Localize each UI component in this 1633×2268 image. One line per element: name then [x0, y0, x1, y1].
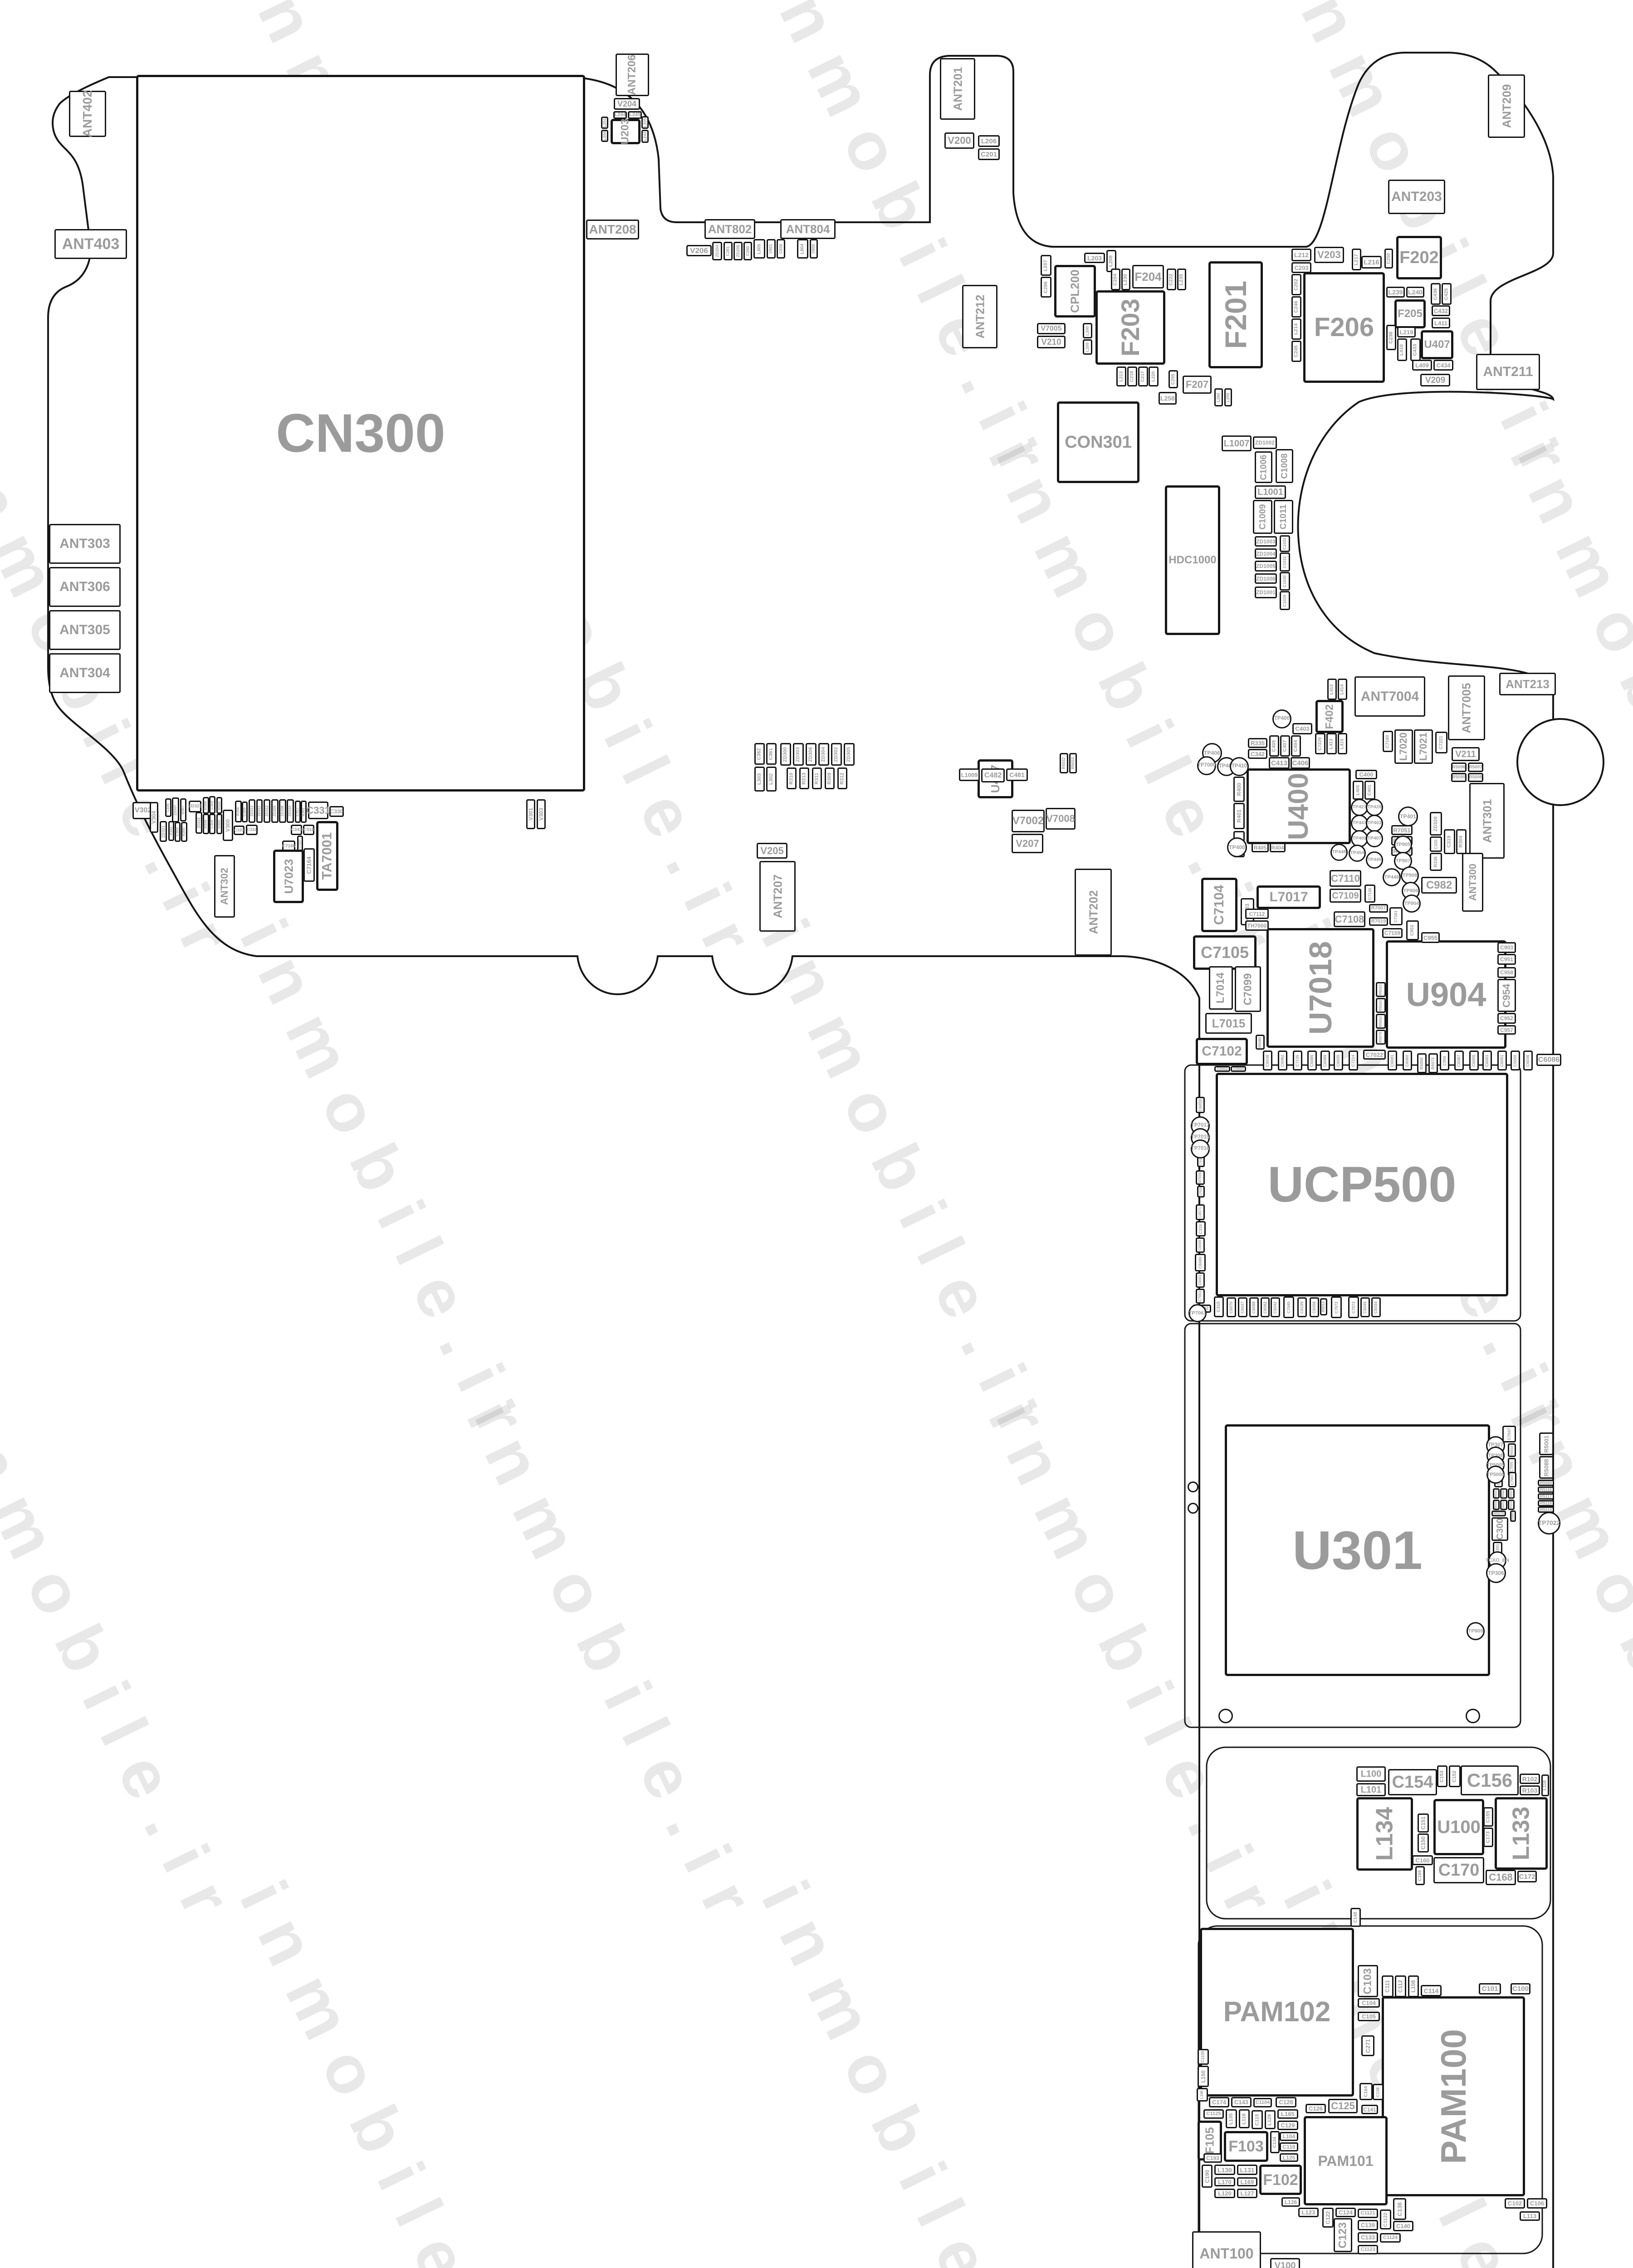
component-L400: L400: [1353, 781, 1364, 800]
component-C1121: C1121: [1358, 2209, 1378, 2218]
component-C125: C125: [1328, 2099, 1358, 2113]
component-L207: L207: [1041, 255, 1051, 276]
component-F206: F206: [1303, 272, 1385, 383]
component-C152: C152: [1449, 1765, 1461, 1787]
component-F203: F203: [1095, 290, 1165, 365]
component-V800: V800: [810, 239, 818, 259]
component-L126: L126: [1281, 2197, 1300, 2207]
component-C150: C150: [1418, 1833, 1429, 1853]
component-R5116: R5116: [1538, 1486, 1554, 1493]
component-ANT301: ANT301: [1469, 783, 1505, 859]
component-C193: C193: [1203, 2153, 1222, 2163]
component-F202: F202: [1396, 236, 1442, 279]
component-R5057: R5057: [1508, 1488, 1515, 1499]
component-V7005: V7005: [1037, 323, 1066, 334]
component-ANT209: ANT209: [1488, 74, 1525, 138]
component-C1031: C1031: [1280, 552, 1290, 572]
component-C7045: C7045: [1283, 1296, 1294, 1318]
testpoint-TP403: TP403: [1366, 815, 1383, 832]
component-U203: U203: [611, 119, 640, 144]
component-R312: R312: [837, 767, 847, 789]
component-CON301: CON301: [1057, 401, 1139, 483]
component-ZD1005: ZD1005: [1255, 561, 1277, 572]
component-L230: L230: [1121, 269, 1130, 290]
component-L805: L805: [753, 239, 765, 259]
component-R5001: R5001: [1539, 1432, 1554, 1455]
component-C317: C317: [295, 801, 301, 823]
component-C7105: C7105: [1193, 935, 1257, 970]
component-V200: V200: [944, 132, 974, 149]
component-C7072: C7072: [1331, 1296, 1342, 1318]
component-C246: C246: [1291, 296, 1301, 318]
component-C6088: C6088: [1249, 1297, 1259, 1317]
component-V204: V204: [614, 98, 640, 110]
component-ZD322: ZD322: [196, 812, 202, 834]
component-C106: C106: [1527, 2198, 1547, 2209]
component-C250: C250: [1384, 249, 1393, 269]
component-ZD205: ZD205: [733, 242, 743, 260]
component-ANT7004: ANT7004: [1354, 676, 1425, 717]
component-L198: L198: [1197, 2088, 1208, 2102]
component-C6038: C6038: [1263, 1051, 1272, 1070]
component-ZD302: ZD302: [831, 743, 842, 766]
component-R5010: R5010: [1508, 1443, 1516, 1457]
component-V206: V206: [686, 245, 712, 256]
component-R306: R306: [235, 801, 242, 822]
component-C6069: C6069: [1196, 1237, 1205, 1253]
component-C204: C204: [1111, 269, 1120, 290]
component-C295: C295: [1169, 370, 1178, 388]
component-L411: L411: [1432, 318, 1450, 328]
component-R304: R304: [1456, 829, 1467, 854]
component-C222: C222: [1167, 269, 1176, 290]
component-C143: C143: [1231, 2097, 1252, 2107]
component-ZD320: ZD320: [1430, 812, 1442, 836]
component-C951: C951: [1497, 954, 1516, 965]
component-R311: R311: [812, 767, 822, 789]
component-C140: C140: [1393, 2221, 1413, 2231]
component-L217: L217: [1352, 249, 1361, 270]
component-C838: C838: [777, 239, 785, 259]
component-L240: L240: [1406, 287, 1424, 298]
component-V100: V100: [1270, 2258, 1300, 2268]
testpoint-TP809: TP809: [1467, 1622, 1485, 1640]
component-C407: C407: [1280, 735, 1290, 757]
component-R5088: R5088: [1539, 1456, 1554, 1479]
testpoint-TP904: TP904: [1403, 894, 1421, 913]
testpoint-TP428: TP428: [1366, 799, 1383, 816]
testpoint-TP410: TP410: [1230, 757, 1249, 776]
component-V304: V304: [150, 802, 158, 833]
component-ANT208: ANT208: [586, 220, 639, 240]
component-L120: L120: [1214, 2189, 1235, 2198]
component-R5024: R5024: [1376, 998, 1386, 1013]
component-L116: L116: [1239, 2109, 1250, 2128]
component-C6051: C6051: [1497, 1051, 1507, 1070]
component-L7020: L7020: [1394, 729, 1413, 764]
component-layer: CN300ANT402ANT403ANT303ANT306ANT305ANT30…: [0, 0, 1633, 2268]
component-L7014: L7014: [1209, 966, 1233, 1010]
testpoint-TP400: TP400: [1227, 837, 1247, 857]
component-C6086: C6086: [1536, 1054, 1561, 1066]
component-C105: C105: [1358, 2012, 1380, 2021]
component-F102: F102: [1259, 2165, 1302, 2195]
component-C124: C124: [1335, 2208, 1356, 2217]
component-V207: V207: [1012, 834, 1043, 853]
component-L127: L127: [1237, 2189, 1257, 2198]
component-C173: C173: [1483, 1828, 1493, 1847]
testpoint-TP400: TP400: [1272, 709, 1291, 728]
component-C138: C138: [1373, 2084, 1384, 2100]
component-C434: C434: [1433, 360, 1453, 371]
component-U301: U301: [1225, 1424, 1490, 1676]
component-R7019: R7019: [1369, 917, 1388, 926]
component-C6085: C6085: [1307, 1051, 1317, 1070]
testpoint-TP7022: TP7022: [1538, 1512, 1560, 1535]
component-L214: L214: [1291, 318, 1301, 340]
component-C7108: C7108: [1334, 911, 1365, 927]
component-R303: R303: [216, 814, 222, 834]
component-C7007: C7007: [1508, 1472, 1516, 1487]
pcb-layout-diagram: PCB component placement diagram inmobile…: [0, 0, 1633, 2268]
component-C6087: C6087: [1454, 1051, 1464, 1070]
component-R404: R404: [1270, 843, 1286, 852]
component-R332: R332: [216, 797, 222, 814]
component-C6109: C6109: [1297, 1297, 1307, 1317]
component-C6055: C6055: [1469, 1051, 1479, 1070]
component-ANT203: ANT203: [1388, 180, 1445, 214]
component-C7130: C7130: [1364, 885, 1375, 903]
component-C7214: C7214: [1349, 1051, 1358, 1070]
component-C128: C128: [1276, 2097, 1296, 2107]
component-R5117: R5117: [1538, 1493, 1554, 1500]
component-F402: F402: [1315, 700, 1344, 733]
component-C6045: C6045: [1360, 1297, 1370, 1317]
component-F207: F207: [1183, 376, 1212, 394]
component-L113: L113: [1520, 2211, 1540, 2221]
component-C151: C151: [1418, 1813, 1429, 1833]
testpoint-TP5006: TP5006: [1486, 1466, 1505, 1484]
component-C133: C133: [1358, 2232, 1378, 2243]
component-L131: L131: [1237, 2165, 1257, 2175]
component-C401: C401: [1364, 781, 1375, 800]
component-C406: C406: [1291, 757, 1310, 769]
component-C318: C318: [303, 825, 314, 835]
component-V203: V203: [1314, 247, 1344, 263]
component-C139: C139: [1358, 2220, 1378, 2230]
component-C320: C320: [1430, 836, 1442, 852]
component-C336: C336: [165, 798, 171, 817]
component-C174: C174: [1209, 2097, 1229, 2107]
component-C7229: C7229: [1315, 733, 1325, 754]
component-C1008: C1008: [1276, 449, 1293, 483]
component-C217: C217: [1138, 367, 1148, 386]
component-L1009: L1009: [959, 768, 980, 781]
component-V303: V303: [537, 799, 546, 829]
component-R348: R348: [203, 797, 209, 814]
component-C190: C190: [1202, 2165, 1213, 2188]
testpoint-TP306: TP306: [1486, 1563, 1506, 1583]
component-L205: L205: [641, 116, 649, 129]
component-C1032: C1032: [1280, 535, 1290, 552]
component-R5079: R5079: [1376, 1030, 1386, 1045]
component-C6035: C6035: [1334, 1051, 1343, 1070]
component-C316: C316: [1196, 1221, 1206, 1237]
component-ZD304: ZD304: [818, 743, 829, 766]
component-L220: L220: [1149, 367, 1159, 386]
component-C982: C982: [1421, 877, 1457, 894]
component-L415: L415: [1338, 733, 1347, 754]
component-C286: C286: [1041, 277, 1051, 298]
component-C6060: C6060: [1403, 1051, 1412, 1070]
component-L170: L170: [1214, 2177, 1235, 2186]
component-L258: L258: [1159, 392, 1177, 405]
component-C7025: C7025: [1197, 1186, 1205, 1198]
component-C114: C114: [1421, 1985, 1442, 1996]
component-L409: L409: [1412, 360, 1432, 371]
component-L302: L302: [766, 767, 777, 792]
component-C7110: C7110: [1330, 870, 1361, 887]
component-F103: F103: [1224, 2131, 1268, 2162]
component-ANT211: ANT211: [1476, 354, 1540, 390]
component-L134: L134: [1356, 1797, 1413, 1871]
component-L235: L235: [1177, 269, 1186, 290]
component-V7008: V7008: [1046, 808, 1076, 830]
component-V301: V301: [526, 799, 535, 829]
component-L125: L125: [1280, 2153, 1298, 2162]
component-C1124: C1124: [1380, 2233, 1401, 2243]
component-C7160: C7160: [1383, 731, 1393, 752]
component-C903: C903: [1497, 942, 1516, 953]
component-C362: C362: [754, 743, 765, 765]
component-L101: L101: [1356, 1783, 1386, 1796]
component-L213: L213: [1116, 367, 1126, 386]
mount-hole: [1218, 1709, 1233, 1723]
component-R5060: R5060: [1500, 1488, 1507, 1499]
component-R5073: R5073: [1428, 1053, 1438, 1073]
component-L150: L150: [1198, 2066, 1209, 2087]
component-C319: C319: [1444, 829, 1455, 854]
component-L100: L100: [1356, 1766, 1386, 1782]
component-U7018: U7018: [1266, 928, 1374, 1048]
component-C169: C169: [1415, 1866, 1425, 1885]
component-R344: R344: [203, 814, 209, 834]
component-R5072: R5072: [1508, 1500, 1515, 1510]
component-L169: L169: [1237, 2177, 1257, 2186]
component-V205: V205: [757, 843, 787, 859]
component-U400: U400: [1247, 768, 1351, 844]
component-U100: U100: [1433, 1799, 1484, 1855]
component-ANT7005: ANT7005: [1448, 675, 1485, 740]
component-ZD310: ZD310: [287, 799, 294, 823]
component-C170: C170: [1433, 1857, 1484, 1883]
component-L130: L130: [1214, 2165, 1235, 2175]
component-C331: C331: [308, 802, 328, 819]
component-C403: C403: [1292, 723, 1312, 734]
component-C432: C432: [1432, 305, 1450, 316]
component-C6037: C6037: [1238, 1297, 1247, 1317]
component-C957: C957: [1497, 1025, 1516, 1035]
component-ANT303: ANT303: [49, 524, 121, 564]
component-L206: L206: [978, 135, 1000, 147]
component-C281: C281: [724, 242, 733, 260]
component-L129: L129: [1265, 2110, 1276, 2129]
component-C6058: C6058: [1310, 1297, 1319, 1317]
component-C6070: C6070: [1227, 1297, 1236, 1317]
component-C141: C141: [1361, 2105, 1378, 2114]
component-C1123: C1123: [1358, 2245, 1378, 2254]
component-F201: F201: [1208, 261, 1263, 368]
component-C354: C354: [209, 814, 215, 834]
component-R307: R307: [180, 798, 186, 821]
component-ANT305: ANT305: [49, 610, 121, 650]
component-L203: L203: [1084, 253, 1105, 263]
component-C1105: C1105: [1198, 2049, 1209, 2065]
component-L303: L303: [754, 767, 765, 792]
component-C126: C126: [1305, 2104, 1326, 2113]
testpoint-TP454: TP454: [1349, 845, 1366, 862]
component-C7063: C7063: [1196, 1289, 1205, 1304]
component-ANT100: ANT100: [1192, 2231, 1261, 2268]
component-ANT212: ANT212: [962, 285, 997, 348]
component-C7022: C7022: [1363, 1050, 1386, 1060]
component-L804: L804: [797, 239, 808, 259]
component-L200: L200: [1083, 323, 1092, 338]
component-C271: C271: [1361, 2035, 1374, 2056]
component-ZD305: ZD305: [844, 743, 855, 766]
component-L165: L165: [1277, 2109, 1298, 2119]
component-ANT213: ANT213: [1499, 673, 1556, 695]
component-C954: C954: [1497, 979, 1516, 1012]
component-C7159: C7159: [1382, 928, 1403, 938]
component-TA7001: TA7001: [316, 821, 338, 891]
component-F205: F205: [1394, 299, 1426, 328]
component-C129: C129: [1277, 2121, 1298, 2130]
component-ANT206: ANT206: [616, 54, 649, 96]
component-C111: C111: [1382, 1975, 1393, 1997]
component-C6081: C6081: [1388, 1051, 1397, 1070]
component-ZD1002: ZD1002: [1253, 436, 1277, 449]
component-ZD313: ZD313: [249, 799, 255, 823]
component-V300: V300: [223, 810, 233, 841]
testpoint-TP446: TP446: [1383, 868, 1401, 886]
component-ZD1006: ZD1006: [1255, 573, 1277, 584]
component-C203: C203: [1291, 262, 1311, 273]
component-C6071: C6071: [1196, 1204, 1205, 1220]
component-C6082: C6082: [1261, 1297, 1270, 1317]
component-R5095: R5095: [1451, 773, 1467, 782]
component-R400: R400: [1233, 777, 1245, 802]
component-ANT207: ANT207: [759, 861, 796, 932]
component-C7073: C7073: [1348, 1296, 1359, 1318]
component-C134: C134: [1270, 2131, 1280, 2153]
component-C245: C245: [1291, 341, 1301, 362]
component-U7023: U7023: [273, 850, 304, 903]
component-C7161: C7161: [1389, 907, 1403, 925]
component-C5003: C5003: [1214, 1066, 1230, 1072]
component-C6080: C6080: [1195, 1254, 1206, 1271]
component-L104: L104: [1280, 2132, 1298, 2141]
component-ANT202: ANT202: [1075, 869, 1112, 956]
component-R5023: R5023: [1376, 982, 1386, 997]
component-C202: C202: [1291, 274, 1301, 295]
component-ANT802: ANT802: [704, 219, 755, 239]
component-R5096: R5096: [1451, 763, 1467, 772]
component-ANT403: ANT403: [54, 229, 127, 259]
component-ZD321: ZD321: [160, 821, 167, 842]
mount-hole: [1466, 1709, 1480, 1723]
component-R102: R102: [1520, 1774, 1540, 1784]
component-C6042: C6042: [1271, 1297, 1280, 1317]
component-R5032: R5032: [1060, 753, 1068, 773]
component-C359: C359: [209, 796, 215, 814]
component-L7021: L7021: [1414, 729, 1433, 764]
component-R300: R300: [181, 822, 187, 842]
mount-hole: [1188, 1481, 1198, 1492]
component-L259: L259: [1224, 388, 1232, 406]
component-R5071: R5071: [1500, 1500, 1507, 1510]
component-R5014: R5014: [1320, 1298, 1327, 1315]
component-L123: L123: [1298, 2208, 1319, 2217]
component-R103: R103: [1520, 1785, 1540, 1795]
component-R5033: R5033: [1069, 753, 1077, 773]
component-L243: L243: [641, 130, 649, 143]
component-ANT201: ANT201: [940, 58, 975, 120]
testpoint-TP7061: TP7061: [1188, 1304, 1207, 1322]
component-CPL200: CPL200: [1054, 265, 1096, 318]
component-C361: C361: [766, 743, 777, 765]
component-ANT402: ANT402: [69, 91, 106, 137]
component-R7007: R7007: [1369, 904, 1388, 913]
component-ZD309: ZD309: [271, 799, 279, 823]
component-L414: L414: [1338, 679, 1347, 700]
component-L412: L412: [1327, 679, 1337, 700]
component-L118: L118: [1541, 1774, 1549, 1796]
component-C6034: C6034: [1371, 1297, 1381, 1317]
component-ANT300: ANT300: [1462, 853, 1483, 912]
mount-hole: [1188, 1503, 1198, 1514]
component-R5069: R5069: [1538, 1480, 1554, 1486]
component-ZD204: ZD204: [712, 242, 722, 260]
component-ANT306: ANT306: [49, 567, 121, 607]
component-R5007: R5007: [1468, 763, 1483, 772]
component-ANT302: ANT302: [214, 855, 235, 918]
component-L244: L244: [613, 111, 627, 119]
component-C481: C481: [1006, 768, 1028, 781]
component-R5050: R5050: [1417, 1053, 1427, 1073]
component-TH7000: TH7000: [1245, 920, 1269, 931]
component-ZD311: ZD311: [256, 799, 263, 823]
component-C101: C101: [1479, 1983, 1501, 1994]
component-R310: R310: [787, 767, 797, 789]
component-ZD308: ZD308: [279, 799, 286, 823]
component-C952: C952: [1497, 1013, 1516, 1024]
component-C7104: C7104: [1201, 878, 1237, 932]
component-R5070: R5070: [1491, 1510, 1506, 1516]
component-C238: C238: [1386, 325, 1396, 350]
component-C482: C482: [981, 768, 1005, 782]
component-R7006: R7006: [1196, 1170, 1205, 1185]
component-C7102: C7102: [1196, 1038, 1248, 1065]
component-C156: C156: [1461, 1765, 1519, 1795]
component-V801: V801: [767, 239, 776, 259]
component-PAM101: PAM101: [1304, 2116, 1388, 2205]
component-L239: L239: [1386, 287, 1405, 298]
component-V210: V210: [1037, 336, 1066, 348]
component-L413: L413: [1326, 733, 1337, 754]
component-C329: C329: [242, 802, 248, 822]
component-C153: C153: [1437, 1765, 1447, 1787]
